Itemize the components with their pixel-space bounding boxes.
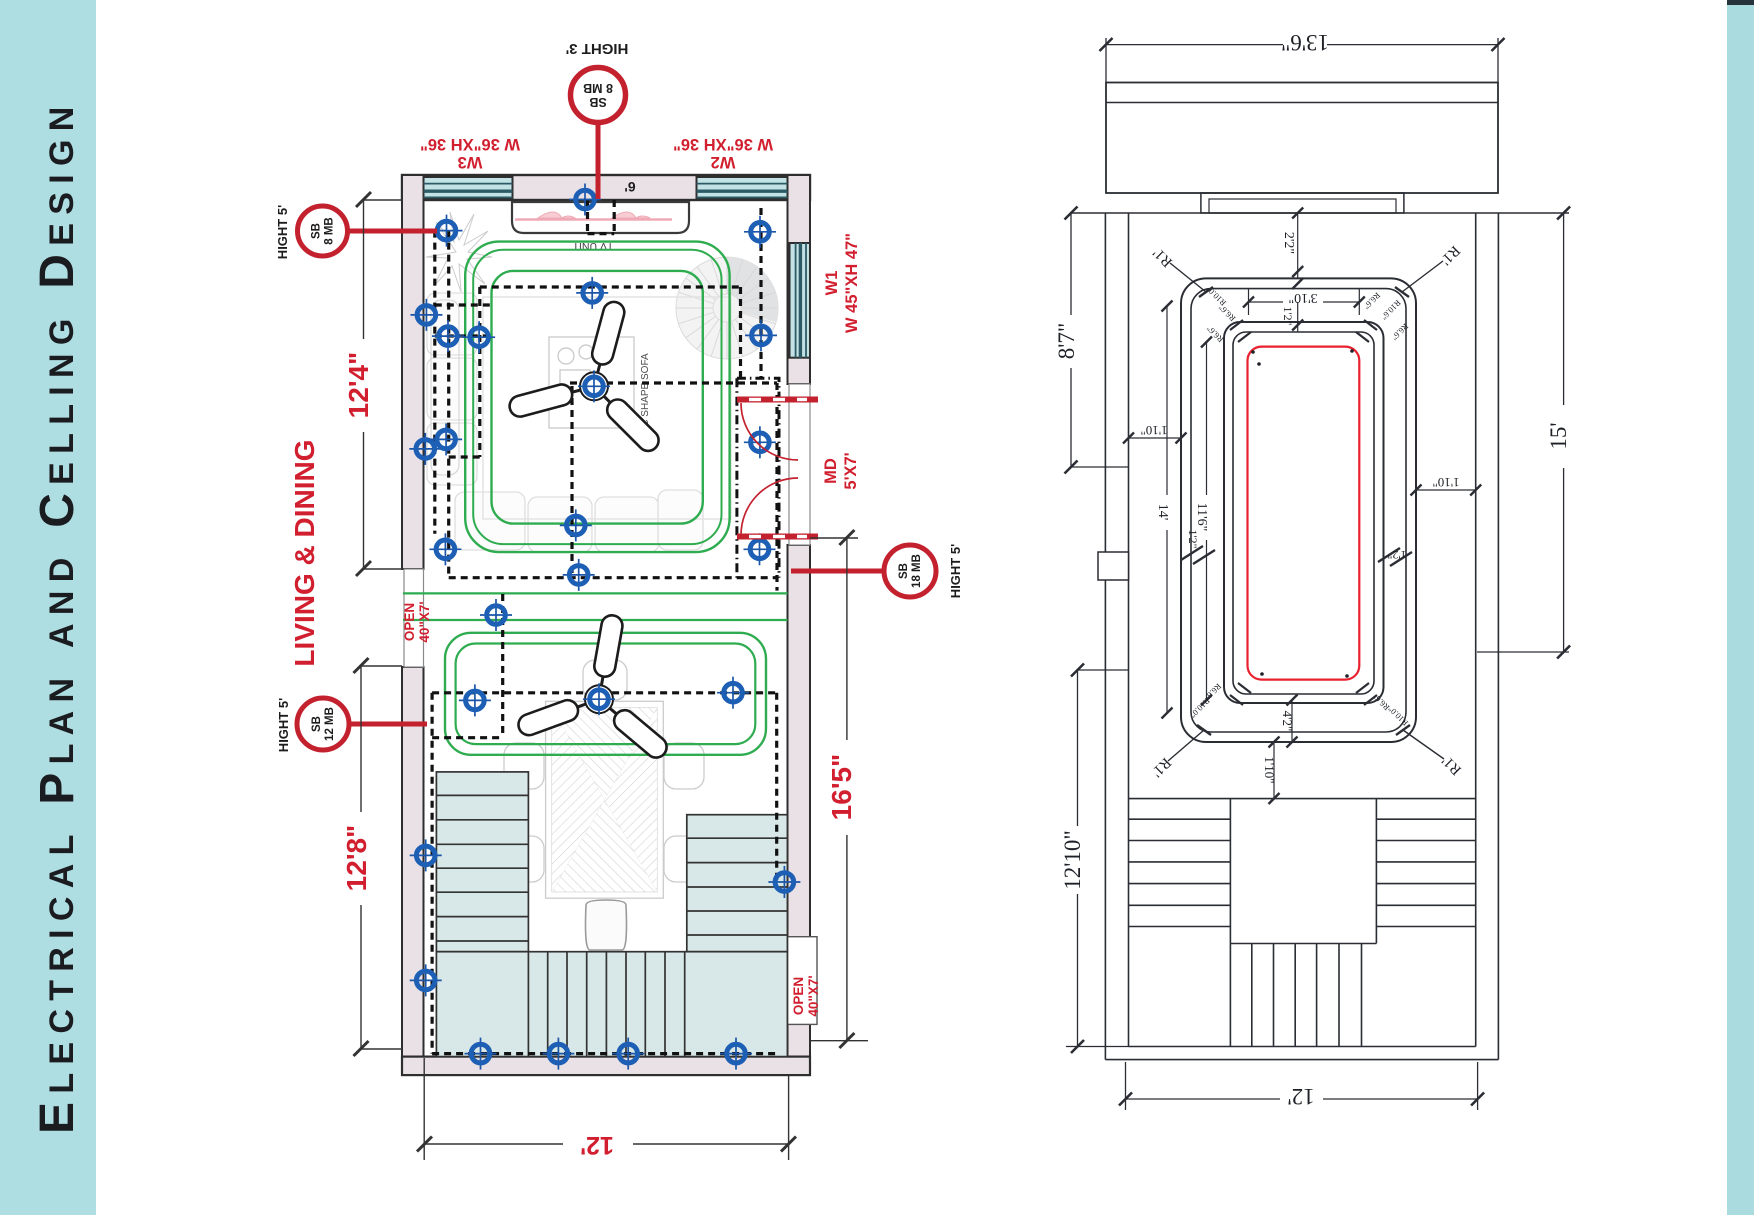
svg-text:HIGHT 3': HIGHT 3' (566, 40, 629, 57)
svg-text:SB: SB (898, 563, 910, 579)
svg-text:SB: SB (311, 716, 323, 732)
svg-text:11'6": 11'6" (1194, 503, 1209, 532)
svg-text:OPEN: OPEN (402, 603, 417, 641)
svg-text:SB: SB (589, 95, 606, 109)
svg-text:8'7": 8'7" (1054, 323, 1079, 360)
svg-text:HIGHT 5': HIGHT 5' (275, 205, 290, 259)
svg-text:40"X7': 40"X7' (417, 601, 432, 642)
svg-text:12': 12' (580, 1131, 614, 1159)
svg-text:HIGHT 5': HIGHT 5' (948, 544, 963, 598)
svg-text:2'2": 2'2" (1281, 232, 1296, 254)
svg-text:13'6": 13'6" (1281, 30, 1329, 55)
svg-text:W 45"XH 47": W 45"XH 47" (843, 233, 861, 333)
svg-text:R1': R1' (1150, 244, 1176, 270)
svg-text:5'X7': 5'X7' (842, 452, 860, 489)
svg-text:LIVING & DINING: LIVING & DINING (289, 439, 320, 666)
svg-text:12'10": 12'10" (1060, 830, 1085, 890)
svg-text:1'2": 1'2" (1186, 529, 1200, 548)
svg-text:40"X7': 40"X7' (806, 975, 821, 1016)
svg-text:8 MB: 8 MB (583, 81, 613, 95)
svg-text:R10.6": R10.6" (1379, 298, 1403, 322)
svg-text:R6.6": R6.6" (1389, 321, 1410, 342)
svg-text:8 MB: 8 MB (324, 217, 336, 244)
svg-text:4'2": 4'2" (1280, 711, 1295, 732)
svg-text:W3: W3 (458, 153, 483, 171)
svg-text:W 36"XH 36": W 36"XH 36" (673, 135, 773, 153)
svg-text:16'5": 16'5" (826, 754, 857, 821)
svg-text:W2: W2 (711, 153, 736, 171)
svg-text:1'10": 1'10" (1262, 756, 1277, 783)
svg-text:15': 15' (1546, 422, 1571, 449)
svg-text:OPEN: OPEN (791, 977, 806, 1015)
svg-text:1'10": 1'10" (1140, 423, 1167, 438)
svg-text:MD: MD (822, 458, 840, 484)
svg-text:R1': R1' (1148, 754, 1174, 780)
svg-text:R1': R1' (1437, 242, 1463, 268)
svg-text:3'10": 3'10" (1288, 290, 1317, 305)
svg-text:W 36"XH 36": W 36"XH 36" (420, 135, 520, 153)
svg-text:1'2": 1'2" (1387, 548, 1406, 562)
svg-text:18 MB: 18 MB (911, 554, 923, 588)
svg-text:R6.6": R6.6" (1361, 290, 1382, 311)
svg-text:SB: SB (311, 223, 323, 239)
svg-text:C SHAPE SOFA: C SHAPE SOFA (640, 353, 651, 427)
svg-text:14': 14' (1155, 504, 1170, 521)
svg-text:1'10": 1'10" (1432, 475, 1459, 490)
svg-text:12'4": 12'4" (343, 352, 374, 419)
svg-text:R1': R1' (1439, 752, 1465, 778)
svg-text:12': 12' (1287, 1084, 1314, 1109)
svg-text:12 MB: 12 MB (324, 707, 336, 741)
svg-text:6': 6' (624, 179, 635, 195)
svg-text:1'2": 1'2" (1281, 306, 1295, 325)
svg-text:12'8": 12'8" (341, 825, 372, 892)
svg-text:HIGHT 5': HIGHT 5' (276, 698, 291, 752)
svg-text:W1: W1 (823, 271, 841, 296)
